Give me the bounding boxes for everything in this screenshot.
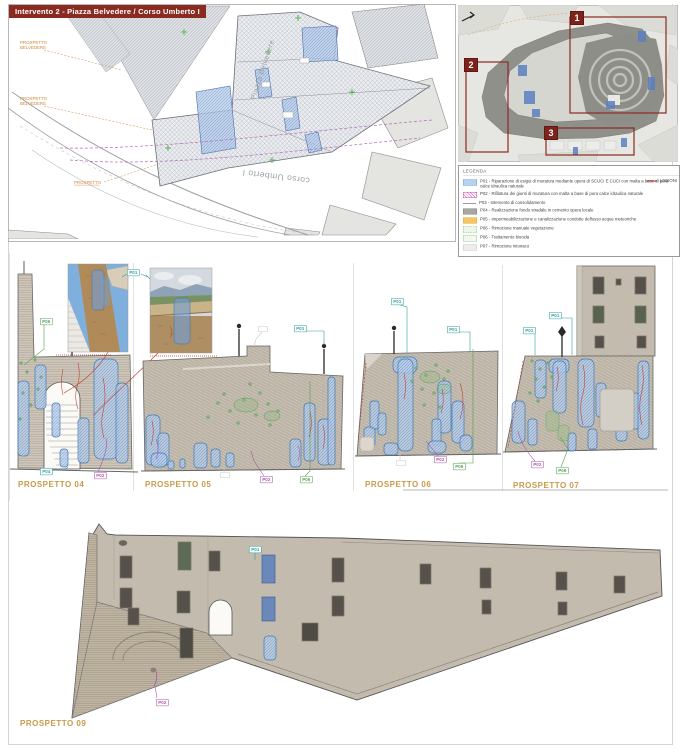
elevation-09-title: PROSPETTO 09: [20, 719, 86, 728]
photo-inset-landscape: [150, 268, 212, 353]
tag-p02: P02: [531, 461, 544, 468]
legend-label-p06a: P06 - Rimozione manuale vegetazione: [480, 226, 554, 233]
tag-p02: P02: [260, 476, 273, 483]
zone-2-marker: 2: [464, 58, 478, 72]
elevations-band: [8, 253, 672, 501]
legend-swatch-p07: [463, 244, 477, 250]
tag-p06: P06: [453, 463, 466, 470]
plan-callout-2-line2: BELVEDERE: [20, 101, 46, 106]
site-plan-drawing: Piazza Belvedere corso Umberto I PROSPET…: [8, 4, 455, 239]
elev07-eroded-patch: [600, 389, 634, 431]
zone-1-marker: 1: [570, 11, 584, 25]
legend-item-p05: P05 - Impermeabilizzazione e canalizzazi…: [463, 217, 679, 224]
plan-callout-1: PROSPETTO BELVEDERE: [20, 40, 48, 50]
elevation-09-drawing: [8, 502, 672, 749]
photo-inset-stairs: [68, 264, 128, 352]
legend-label-p07: P07 - Rimozione intonaco: [480, 244, 529, 251]
tag-empty: [220, 472, 230, 478]
legend-label-p03: P03 - Intervento di consolidamento: [479, 200, 545, 205]
legend-item-p03: P03 - Intervento di consolidamento: [463, 200, 679, 205]
street-label: corso Umberto I: [242, 168, 311, 186]
tag-p01: P01: [294, 325, 307, 332]
tag-p01: P01: [391, 298, 404, 305]
elevation-04-title: PROSPETTO 04: [18, 480, 84, 489]
legend-label-p06b: P06 - Trattamento biocida: [480, 235, 529, 242]
legend-title: LEGENDA: [463, 169, 679, 174]
plan-callout-1-line1: PROSPETTO: [20, 40, 48, 45]
legend-swatch-p03: [463, 203, 476, 204]
legend-swatch-p06b: [463, 235, 477, 241]
drawing-sheet: Piazza Belvedere corso Umberto I PROSPET…: [0, 0, 680, 749]
tag-p02: P02: [434, 456, 447, 463]
plan-callout-2: PROSPETTO BELVEDERE: [20, 96, 48, 106]
tag-empty: [258, 326, 268, 332]
tag-p01: P01: [549, 312, 562, 319]
legend-swatch-p04: [463, 208, 477, 214]
legend-divider: [463, 176, 679, 177]
tag-p01: P01: [249, 546, 262, 553]
tag-p06: P06: [300, 476, 313, 483]
lesioni-label: LESIONI: [660, 178, 677, 183]
legend-lesioni: LESIONI: [647, 178, 677, 183]
elevation-05-title: PROSPETTO 05: [145, 480, 211, 489]
street-label-group: corso Umberto I: [242, 168, 311, 186]
plan-callout-3: PROSPETTO: [74, 180, 102, 185]
tag-p06: P06: [40, 318, 53, 325]
legend-label-p05: P05 - Impermeabilizzazione e canalizzazi…: [480, 217, 636, 224]
legend-swatch-p06a: [463, 226, 477, 232]
tag-p01: P01: [523, 327, 536, 334]
legend-swatch-p01: [463, 180, 477, 186]
elev09-blue-patch: [264, 636, 276, 660]
tag-p02: P02: [94, 472, 107, 479]
legend-label-p04: P04 - Realizzazione fondo stradale in ce…: [480, 208, 593, 215]
plan-callout-3-text: PROSPETTO: [74, 180, 102, 185]
elevation-07-drawing: [503, 266, 657, 467]
aerial-keyplan: [458, 5, 678, 162]
legend-swatch-p05: [463, 217, 477, 223]
tag-p02: P02: [156, 699, 169, 706]
tag-p04: P04: [40, 468, 53, 475]
legend-item-p06b: P06 - Trattamento biocida: [463, 235, 679, 242]
tag-p06: P06: [556, 467, 569, 474]
tag-empty: [396, 460, 406, 466]
legend-label-p02: P02 - Rifilatura dei giunti di muratura …: [480, 191, 643, 198]
zone-3-marker: 3: [544, 126, 558, 140]
legend-item-p06a: P06 - Rimozione manuale vegetazione: [463, 226, 679, 233]
arch-passage: [209, 600, 232, 635]
legend-panel: LEGENDA P01 - Riparazione di esigui di m…: [458, 165, 680, 257]
lamp-post-icon: [558, 326, 566, 357]
legend-item-p07: P07 - Rimozione intonaco: [463, 244, 679, 251]
elevation-06-title: PROSPETTO 06: [365, 480, 431, 489]
tag-p01: P01: [127, 269, 140, 276]
plan-callout-2-line1: PROSPETTO: [20, 96, 48, 101]
legend-item-p04: P04 - Realizzazione fondo stradale in ce…: [463, 208, 679, 215]
lesioni-line: [647, 180, 658, 181]
legend-swatch-p02: [463, 192, 477, 198]
title-banner: Intervento 2 - Piazza Belvedere / Corso …: [9, 5, 206, 18]
tag-p01: P01: [447, 326, 460, 333]
elevation-07-title: PROSPETTO 07: [513, 481, 579, 490]
legend-item-p02: P02 - Rifilatura dei giunti di muratura …: [463, 191, 679, 198]
elevation-06-drawing: [355, 304, 501, 463]
lamp-post-icon: [392, 326, 396, 354]
plan-callout-1-line2: BELVEDERE: [20, 45, 46, 50]
